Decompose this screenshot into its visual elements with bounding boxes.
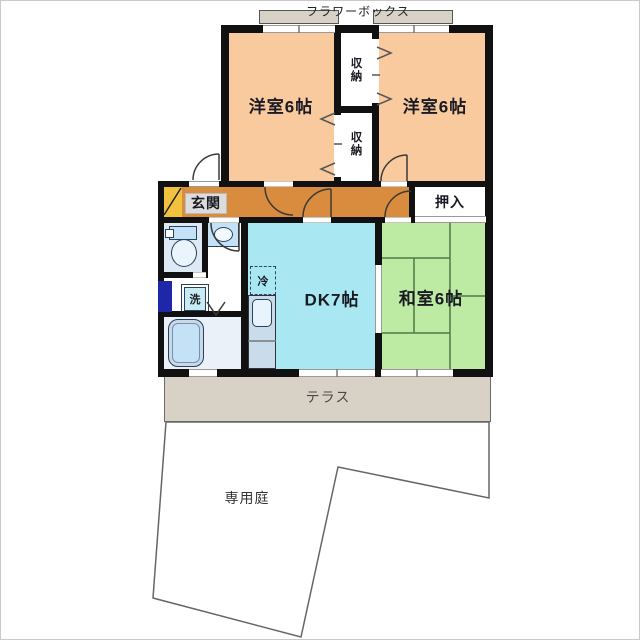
washitsu-terrace-window xyxy=(381,369,453,377)
washitsu-door-opening xyxy=(385,217,411,223)
dk-label: DK7帖 xyxy=(304,286,359,311)
floor-plan: 洗 冷 xyxy=(0,0,640,640)
oshiire-sliding-door xyxy=(415,216,486,223)
window-top-right xyxy=(379,25,449,33)
wall-washroom-right xyxy=(241,223,248,377)
bedroom-left-label: 洋室6帖 xyxy=(249,93,313,118)
washroom-door-opening xyxy=(209,217,239,223)
window-top-left xyxy=(263,25,335,33)
washroom-window xyxy=(158,281,172,312)
toilet-door-opening xyxy=(193,272,206,278)
storage-lower-label: 収納 xyxy=(350,132,364,158)
wall-upper-left xyxy=(221,25,229,187)
terrace-label: テラス xyxy=(306,387,351,407)
bedroom-right-door-opening xyxy=(381,181,407,187)
genkan-label: 玄関 xyxy=(191,193,221,213)
bedroom-left-door-opening xyxy=(264,181,293,187)
dk-door-opening xyxy=(303,217,331,223)
dk-washitsu-sliding-door xyxy=(375,265,382,333)
bedroom-right-label: 洋室6帖 xyxy=(403,93,467,118)
fridge-label: 冷 xyxy=(258,273,269,289)
washer-label: 洗 xyxy=(190,291,201,307)
front-door-arc xyxy=(193,154,219,180)
flower-box-label: フラワーボックス xyxy=(306,3,410,20)
wall-right xyxy=(485,25,493,377)
fridge-space: 冷 xyxy=(250,266,276,295)
wall-storage-mid xyxy=(334,106,379,113)
wall-top xyxy=(221,25,493,33)
garden-label: 専用庭 xyxy=(225,488,270,508)
wall-bedrooms-bottom xyxy=(221,181,493,187)
bathroom-window xyxy=(189,369,217,377)
bathtub xyxy=(168,319,204,367)
garden-outline xyxy=(153,422,489,637)
wall-toilet-right xyxy=(202,223,208,278)
genkan-area xyxy=(164,187,182,217)
washer-pan: 洗 xyxy=(181,284,209,314)
storage-lower-opening xyxy=(334,115,341,177)
front-door-opening xyxy=(189,181,219,187)
kitchen-sink xyxy=(252,299,272,327)
toilet-flush-handle xyxy=(165,229,174,238)
storage-upper-label: 収納 xyxy=(350,58,364,84)
storage-upper-opening xyxy=(372,39,379,103)
toilet-bowl xyxy=(171,239,197,267)
washitsu-label: 和室6帖 xyxy=(399,285,463,310)
vanity-basin xyxy=(214,227,233,242)
wall-left-outer xyxy=(158,181,164,377)
dk-terrace-window xyxy=(299,369,375,377)
oshiire-label: 押入 xyxy=(435,192,465,212)
